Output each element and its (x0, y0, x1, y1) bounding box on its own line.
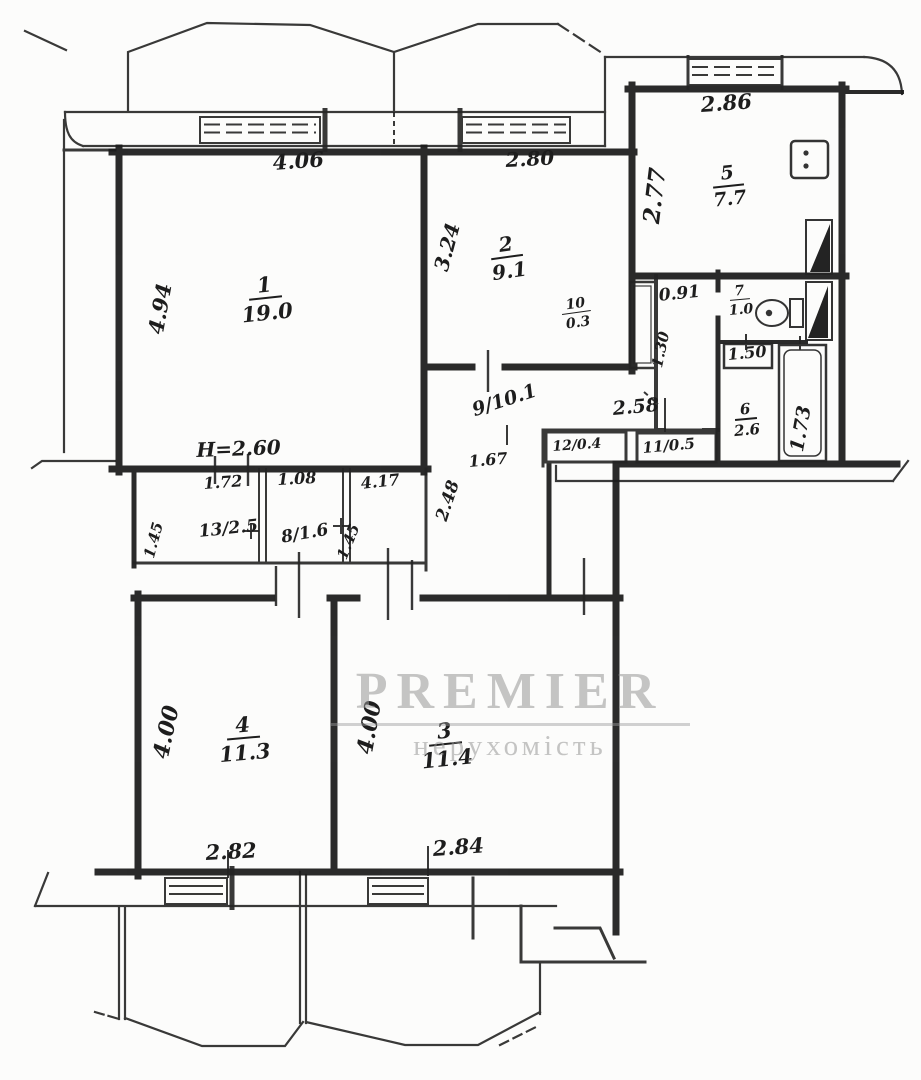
balcony-top-left-outline (128, 23, 394, 110)
balcony-divider-mid (300, 872, 306, 1023)
kitchen-depth-label: 2.77 (640, 166, 670, 224)
closet13-width-label: 1.72 (203, 473, 243, 492)
kitchen-width-label: 2.86 (700, 90, 752, 115)
room4-width-label: 2.82 (205, 839, 257, 863)
room6-number: 6 (733, 401, 757, 421)
room1-area: 19.0 (241, 299, 294, 325)
main-walls (98, 85, 902, 932)
hall-width-label: 2.58 (612, 396, 660, 419)
room7-number: 7 (729, 283, 750, 301)
watermark: PREMIER нерухомість (330, 662, 690, 763)
room5-number: 5 (711, 162, 744, 188)
toilet-icon (756, 299, 803, 327)
closet12-label: 12/0.4 (552, 437, 602, 454)
hall-lower-width-label: 4.17 (360, 472, 400, 492)
floorplan-page: 4.06 4.94 1 19.0 H=2.60 2.80 3.24 2 9.1 … (0, 0, 921, 1080)
balcony-bottom-right-outline (306, 1012, 540, 1045)
floorplan-drawing (0, 0, 921, 1080)
window-room4 (165, 878, 227, 904)
room10-area: 0.3 (563, 314, 594, 332)
room6-area: 2.6 (733, 422, 760, 439)
window-room3 (368, 878, 428, 904)
closet11-label: 11/0.5 (642, 436, 696, 456)
sink-width-label: 1.50 (727, 344, 767, 363)
room4-number: 4 (225, 713, 260, 741)
porch-outline (521, 906, 645, 962)
room10-number: 10 (560, 295, 591, 315)
balcony-bottom-left-outline (125, 1018, 303, 1046)
window-top-2 (462, 117, 570, 143)
room2-area: 9.1 (491, 259, 528, 284)
room7-label: 7 1.0 (727, 282, 754, 318)
room1-width-label: 4.06 (272, 148, 324, 173)
vestibule-width-label: 0.91 (658, 284, 701, 305)
door-room3 (388, 548, 412, 620)
room1-label: 1 19.0 (237, 269, 293, 325)
room4-area: 11.3 (218, 740, 271, 765)
room2-number: 2 (488, 232, 523, 260)
windows (165, 55, 782, 910)
window-kitchen (688, 59, 782, 85)
balcony-divider-left (119, 907, 125, 1019)
watermark-subtitle: нерухомість (330, 730, 690, 763)
room7-area: 1.0 (728, 302, 753, 318)
room5-label: 5 7.7 (710, 160, 748, 210)
stove-icon (791, 141, 828, 178)
hall-length-label: 1.67 (468, 451, 508, 470)
room3-width-label: 2.84 (432, 834, 484, 859)
closet8-width-label: 1.08 (277, 470, 317, 488)
room6-label: 6 2.6 (731, 399, 760, 439)
room2-label: 2 9.1 (487, 230, 528, 283)
window-top-1 (200, 117, 320, 143)
watermark-brand: PREMIER (330, 662, 690, 726)
room2-width-label: 2.80 (505, 147, 555, 170)
ceiling-height-label: H=2.60 (196, 437, 281, 460)
room1-number: 1 (247, 272, 282, 300)
room5-area: 7.7 (713, 188, 748, 210)
room4-label: 4 11.3 (216, 710, 271, 765)
room10-label: 10 0.3 (560, 294, 594, 332)
wall-closet13-right (259, 469, 266, 563)
